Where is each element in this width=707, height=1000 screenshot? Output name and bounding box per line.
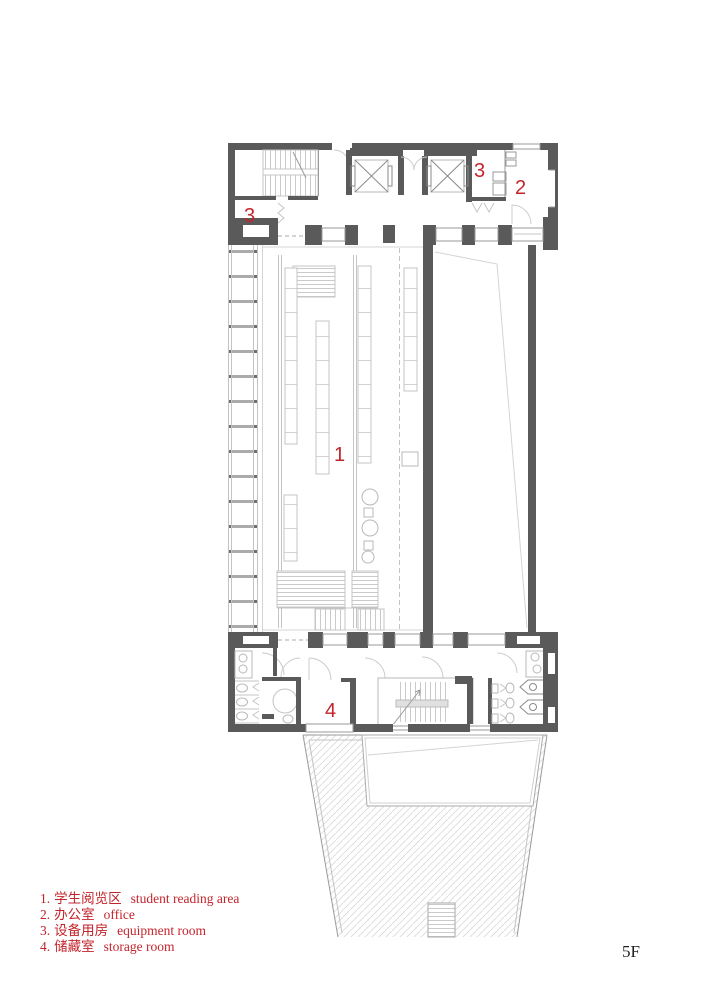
window-pier-row-top xyxy=(278,217,558,250)
elevator-icon-right xyxy=(422,148,477,202)
legend-item-2: 2.办公室office xyxy=(40,906,135,922)
room-marker-4: 4 xyxy=(325,700,336,722)
left-facade-louvers xyxy=(229,245,263,632)
bottom-wall xyxy=(228,724,558,732)
reading-tables xyxy=(362,452,418,563)
floor-label: 5F xyxy=(622,942,640,961)
room-marker-3-top-right: 3 xyxy=(474,160,485,182)
skylight-opening xyxy=(362,735,543,806)
floor-plan-sheet: 3 3 2 1 4 1.学生阅览区student reading area 2.… xyxy=(0,0,707,1000)
stair-icon-top xyxy=(263,150,319,196)
legend-item-3: 3.设备用房equipment room xyxy=(40,922,206,938)
void-area xyxy=(423,245,536,632)
student-reading-area xyxy=(263,247,423,630)
top-wing xyxy=(228,143,558,250)
window-pier-row-bottom xyxy=(228,632,558,648)
room-marker-1: 1 xyxy=(334,444,345,466)
legend-item-1: 1.学生阅览区student reading area xyxy=(40,891,239,906)
accessible-toilet xyxy=(273,658,300,723)
room-marker-3-top-left: 3 xyxy=(244,205,255,227)
legend: 1.学生阅览区student reading area 2.办公室office … xyxy=(40,891,239,954)
ladder-icon xyxy=(428,903,455,937)
elevator-icon-left xyxy=(346,148,404,195)
toilet-right xyxy=(488,648,558,732)
stair-icon-bottom-wing xyxy=(378,676,473,729)
bookshelves xyxy=(284,266,417,561)
legend-item-4: 4.储藏室storage room xyxy=(40,938,175,954)
stair-icon-hall-bottom xyxy=(277,571,384,630)
bottom-wing xyxy=(228,632,558,732)
floor-plan-drawing: 3 3 2 1 4 1.学生阅览区student reading area 2.… xyxy=(0,0,707,1000)
stair-icon-hall-top xyxy=(293,266,335,297)
roof-terrace xyxy=(303,735,547,937)
room-marker-2: 2 xyxy=(515,177,526,199)
